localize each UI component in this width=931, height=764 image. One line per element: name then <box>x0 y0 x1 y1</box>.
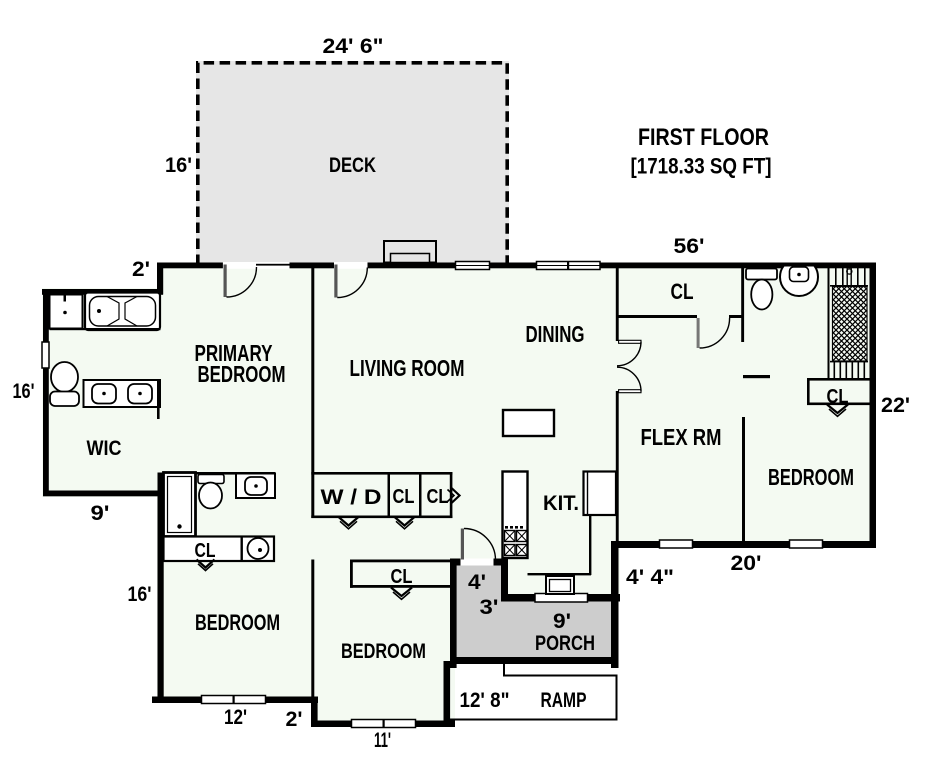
svg-text:BEDROOM: BEDROOM <box>341 640 426 663</box>
svg-text:CL: CL <box>195 540 216 562</box>
svg-text:FLEX RM: FLEX RM <box>641 424 722 450</box>
svg-text:BEDROOM: BEDROOM <box>195 610 280 635</box>
svg-text:9': 9' <box>91 502 110 525</box>
svg-text:16': 16' <box>13 380 35 403</box>
svg-text:WIC: WIC <box>87 437 122 460</box>
svg-text:12': 12' <box>224 706 247 729</box>
svg-text:16': 16' <box>128 583 152 606</box>
svg-text:LIVING ROOM: LIVING ROOM <box>350 355 465 381</box>
svg-text:20': 20' <box>731 552 762 575</box>
svg-text:CL: CL <box>391 566 413 588</box>
svg-text:KIT.: KIT. <box>543 492 579 515</box>
svg-text:CL: CL <box>393 486 415 508</box>
svg-text:CL: CL <box>827 386 849 408</box>
svg-text:16': 16' <box>165 154 192 177</box>
svg-text:PORCH: PORCH <box>535 632 595 655</box>
svg-text:[1718.33 SQ FT]: [1718.33 SQ FT] <box>631 154 772 179</box>
svg-text:BEDROOM: BEDROOM <box>768 464 854 490</box>
svg-text:CL: CL <box>427 486 449 508</box>
svg-text:RAMP: RAMP <box>541 689 587 712</box>
svg-text:FIRST FLOOR: FIRST FLOOR <box>638 124 769 151</box>
svg-text:22': 22' <box>881 394 910 417</box>
svg-text:DECK: DECK <box>329 154 376 177</box>
svg-text:11': 11' <box>374 729 391 752</box>
svg-text:DINING: DINING <box>526 321 585 347</box>
svg-text:24' 6": 24' 6" <box>323 35 384 58</box>
svg-text:4': 4' <box>468 571 486 594</box>
svg-text:BEDROOM: BEDROOM <box>198 361 286 387</box>
svg-text:12' 8": 12' 8" <box>460 689 510 712</box>
svg-text:4' 4": 4' 4" <box>626 566 674 589</box>
svg-text:56': 56' <box>674 235 705 258</box>
svg-text:2': 2' <box>286 708 303 731</box>
svg-text:CL: CL <box>671 279 694 304</box>
svg-text:2': 2' <box>132 258 150 281</box>
svg-text:3': 3' <box>480 596 499 619</box>
svg-text:W / D: W / D <box>321 486 382 509</box>
svg-text:9': 9' <box>553 610 571 633</box>
